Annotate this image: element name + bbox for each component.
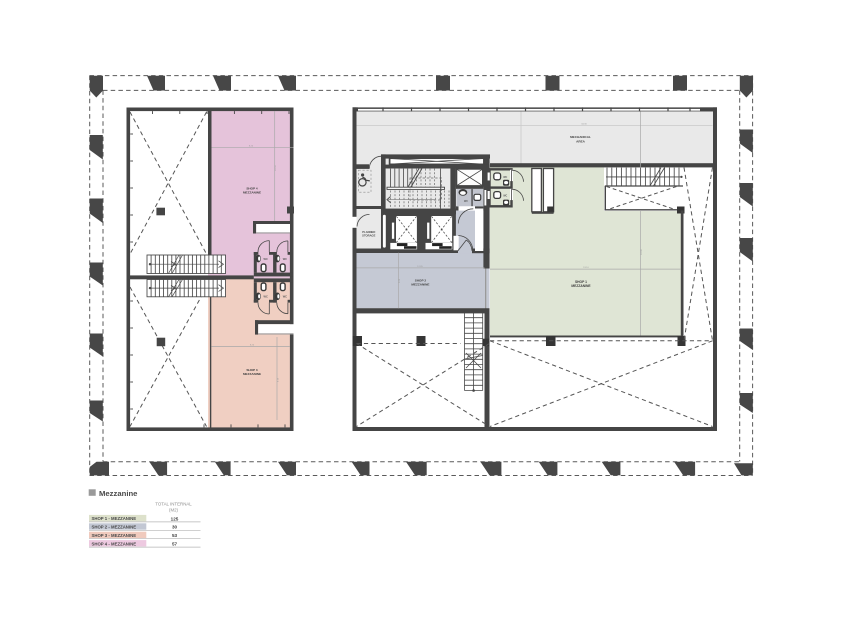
svg-text:MEZZANINE: MEZZANINE [243, 191, 261, 195]
svg-text:MEZZANINE: MEZZANINE [243, 372, 261, 376]
svg-text:PLANNED: PLANNED [362, 230, 375, 234]
svg-text:AREA: AREA [576, 139, 586, 143]
svg-text:SHOP 1 - MEZZANINE: SHOP 1 - MEZZANINE [92, 516, 137, 521]
svg-text:SHOP 4 - MEZZANINE: SHOP 4 - MEZZANINE [92, 541, 137, 546]
svg-text:53: 53 [172, 533, 178, 538]
svg-text:12.85: 12.85 [417, 266, 423, 268]
svg-text:MEZZANINE: MEZZANINE [571, 284, 591, 288]
svg-text:(M2): (M2) [169, 508, 179, 513]
svg-text:WC: WC [503, 194, 507, 197]
svg-text:57: 57 [172, 542, 178, 547]
svg-text:WC: WC [283, 257, 287, 261]
svg-text:WC: WC [283, 295, 287, 299]
svg-text:Mezzanine: Mezzanine [99, 489, 138, 498]
svg-text:SHOP 3 - MEZZANINE: SHOP 3 - MEZZANINE [92, 533, 137, 538]
svg-text:19.10: 19.10 [583, 267, 589, 269]
svg-text:125: 125 [171, 516, 179, 521]
svg-text:WC: WC [264, 257, 268, 261]
svg-text:WC: WC [464, 200, 468, 203]
svg-text:SHOP 2 - MEZZANINE: SHOP 2 - MEZZANINE [92, 525, 137, 530]
svg-text:STORAGE: STORAGE [362, 234, 375, 238]
svg-text:16.90: 16.90 [641, 248, 643, 254]
svg-text:WC: WC [503, 176, 507, 179]
svg-text:MEZZANINE: MEZZANINE [411, 282, 429, 286]
svg-text:TOTAL INTERNAL: TOTAL INTERNAL [155, 502, 192, 507]
svg-text:WC: WC [264, 295, 268, 299]
svg-text:30: 30 [172, 525, 178, 530]
svg-text:34.30: 34.30 [581, 124, 587, 126]
svg-text:16.50: 16.50 [275, 164, 277, 170]
